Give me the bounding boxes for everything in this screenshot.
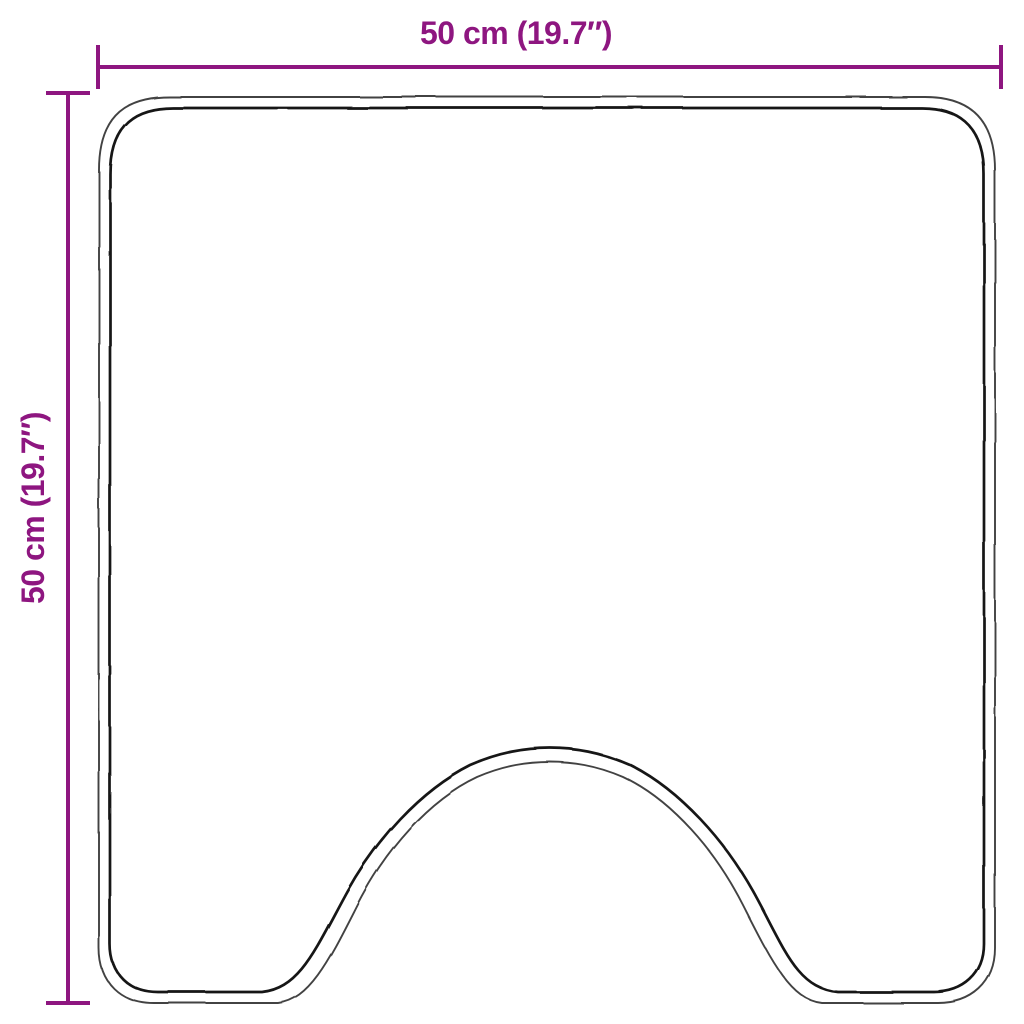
mat-outline: [99, 97, 995, 1003]
left-dimension: [46, 93, 90, 1003]
mat-outline-outer-line: [99, 97, 995, 1003]
product-dimension-image: 50 cm (19.7″) 50 cm (19.7″): [0, 0, 1024, 1024]
dimension-diagram-canvas: 50 cm (19.7″) 50 cm (19.7″): [0, 0, 1024, 1024]
top-dimension-label: 50 cm (19.7″): [420, 15, 612, 51]
left-dimension-label: 50 cm (19.7″): [15, 412, 51, 604]
mat-outline-inner-line: [110, 108, 984, 992]
top-dimension: [98, 45, 1001, 89]
